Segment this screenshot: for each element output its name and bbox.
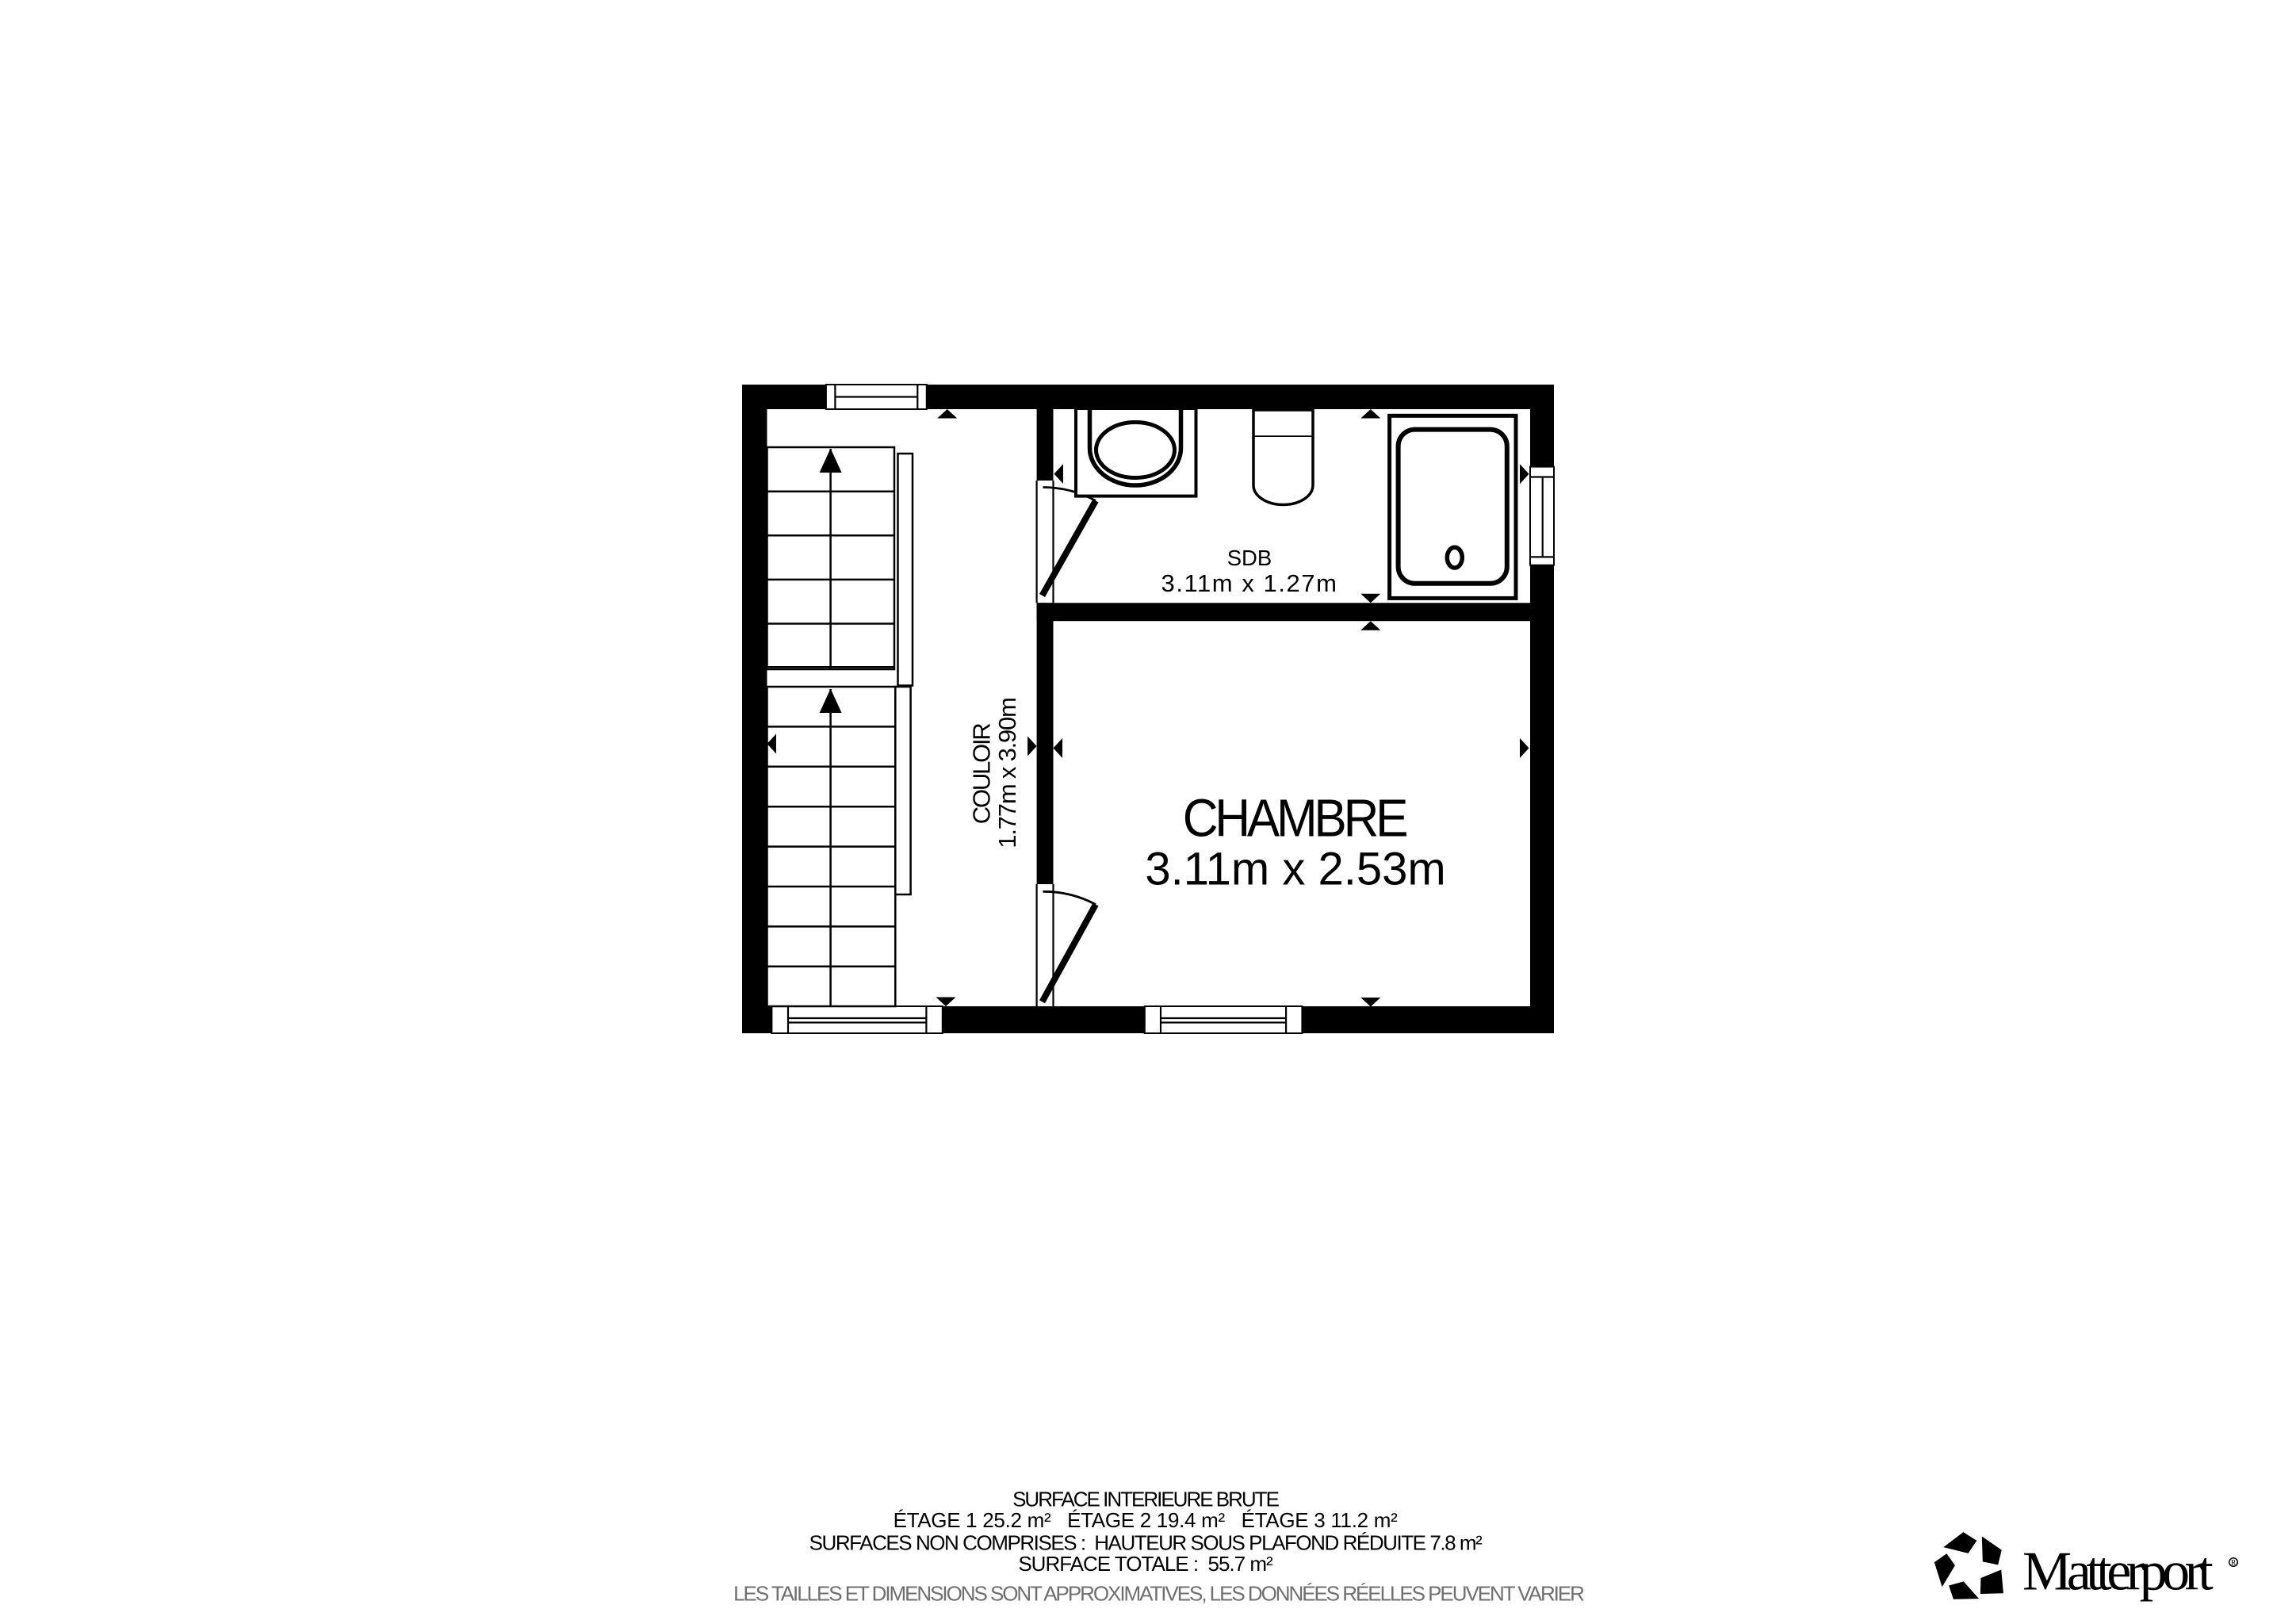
svg-text:SURFACE TOTALE : 55.7 m²: SURFACE TOTALE : 55.7 m²	[1018, 1552, 1273, 1576]
svg-text:R: R	[2231, 1559, 2237, 1567]
svg-text:COULOIR: COULOIR	[968, 724, 996, 825]
svg-text:CHAMBRE: CHAMBRE	[1183, 788, 1407, 848]
svg-text:Matterport: Matterport	[2022, 1542, 2214, 1603]
svg-text:3.11m x 1.27m: 3.11m x 1.27m	[1161, 569, 1338, 597]
svg-text:ÉTAGE 1 25.2 m² ÉTAGE 2 19.4: ÉTAGE 1 25.2 m² ÉTAGE 2 19.4 m² ÉTAGE 3 …	[894, 1508, 1399, 1532]
svg-text:LES TAILLES ET DIMENSIONS SONT: LES TAILLES ET DIMENSIONS SONT APPROXIMA…	[733, 1582, 1584, 1606]
svg-text:SURFACE INTERIEURE BRUTE: SURFACE INTERIEURE BRUTE	[1012, 1488, 1279, 1511]
svg-text:1.77m x 3.90m: 1.77m x 3.90m	[993, 698, 1021, 848]
svg-text:SDB: SDB	[1227, 546, 1272, 570]
svg-text:3.11m x 2.53m: 3.11m x 2.53m	[1145, 844, 1445, 895]
